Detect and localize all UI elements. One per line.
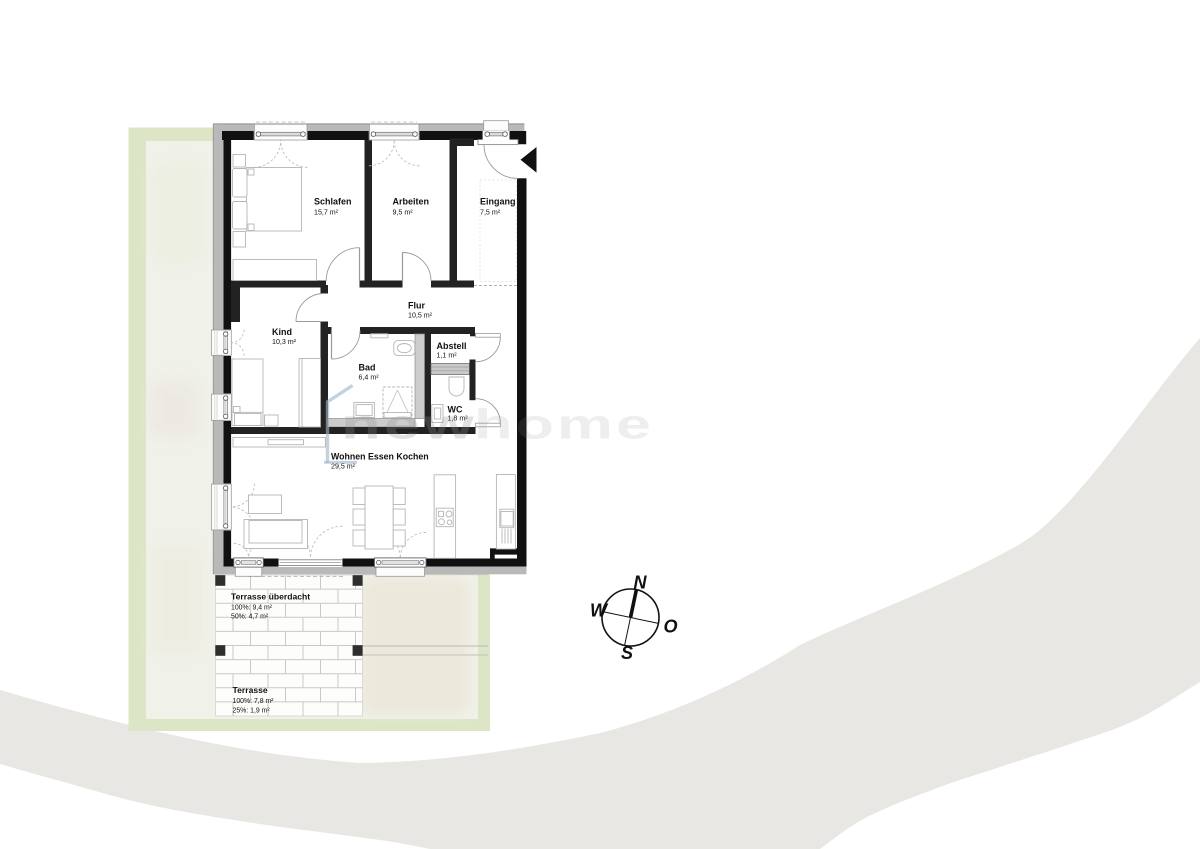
svg-text:15,7 m²: 15,7 m²: [314, 209, 339, 217]
svg-text:Abstell: Abstell: [437, 341, 467, 351]
svg-text:Flur: Flur: [408, 301, 425, 311]
svg-text:W: W: [590, 601, 609, 621]
svg-text:Bad: Bad: [359, 363, 376, 373]
svg-text:Eingang: Eingang: [480, 197, 516, 207]
svg-text:S: S: [621, 643, 633, 663]
svg-text:29,5 m²: 29,5 m²: [331, 463, 356, 471]
svg-text:Wohnen Essen Kochen: Wohnen Essen Kochen: [331, 452, 429, 462]
svg-text:7,5 m²: 7,5 m²: [480, 209, 501, 217]
svg-text:Schlafen: Schlafen: [314, 197, 352, 207]
svg-text:100%: 9,4 m²: 100%: 9,4 m²: [231, 605, 273, 612]
svg-text:Terrasse überdacht: Terrasse überdacht: [231, 592, 310, 602]
svg-text:Kind: Kind: [272, 327, 292, 337]
svg-text:O: O: [663, 617, 677, 637]
svg-text:25%: 1,9 m²: 25%: 1,9 m²: [233, 707, 271, 714]
svg-text:home: home: [474, 402, 654, 448]
svg-text:N: N: [634, 573, 648, 593]
svg-text:new: new: [341, 400, 477, 448]
svg-text:1,1 m²: 1,1 m²: [437, 352, 458, 360]
svg-text:6,4 m²: 6,4 m²: [359, 374, 380, 382]
svg-text:Terrasse: Terrasse: [233, 685, 268, 695]
svg-text:10,5 m²: 10,5 m²: [408, 312, 433, 320]
svg-text:10,3 m²: 10,3 m²: [272, 338, 297, 346]
svg-text:Arbeiten: Arbeiten: [393, 197, 430, 207]
svg-text:50%: 4,7 m²: 50%: 4,7 m²: [231, 614, 269, 621]
svg-text:9,5 m²: 9,5 m²: [393, 209, 414, 217]
svg-text:100%: 7,8 m²: 100%: 7,8 m²: [233, 698, 275, 705]
